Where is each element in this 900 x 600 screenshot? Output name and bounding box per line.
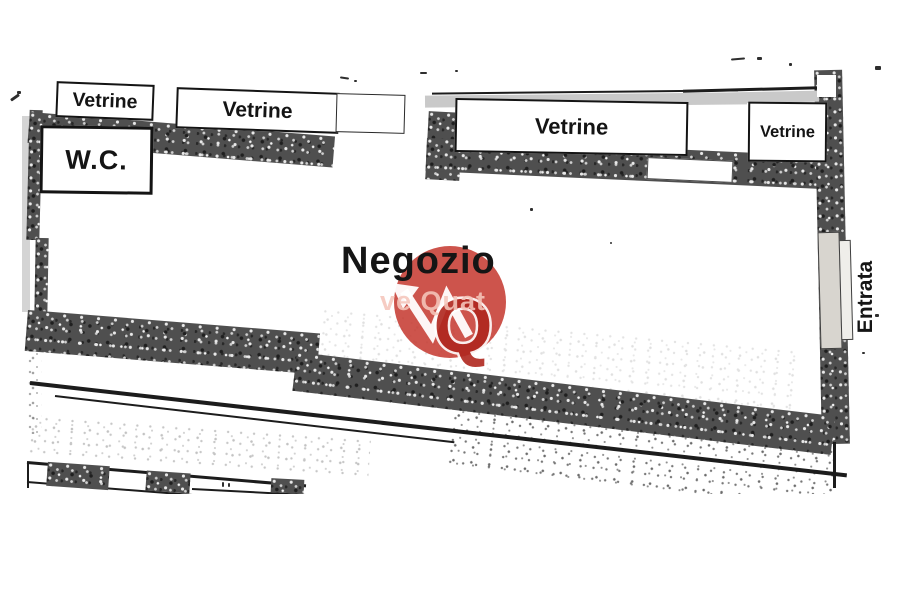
watermark-text: ve Quat — [380, 286, 486, 316]
scan-speck — [731, 57, 745, 60]
scan-speck — [610, 242, 612, 244]
wc-room-label: W.C. — [65, 144, 128, 176]
lower-facade-block-2 — [145, 470, 190, 493]
window-box-3: Vetrine — [455, 98, 689, 156]
scan-speck — [354, 80, 357, 82]
scan-speck — [455, 70, 458, 72]
window-label-1: Vetrine — [72, 88, 138, 113]
scan-speck — [757, 57, 762, 60]
scan-speck — [10, 93, 20, 101]
window-box-2: Vetrine — [175, 87, 339, 134]
scan-speck — [222, 482, 224, 487]
scan-speck — [340, 76, 349, 79]
entrance-label: Entrata — [854, 247, 880, 347]
window-label-3: Vetrine — [535, 113, 609, 140]
bottom-wall-band-left — [25, 310, 320, 374]
scan-bottom-margin — [0, 494, 900, 600]
window-box-1: Vetrine — [55, 81, 154, 121]
unlabeled-opening-box — [336, 93, 406, 134]
scan-speck — [17, 91, 21, 94]
noise-left-strip — [28, 348, 42, 434]
right-wall-tail-line — [833, 442, 836, 488]
scan-speck — [530, 208, 533, 211]
scan-speck — [789, 63, 792, 66]
scan-speck — [875, 66, 881, 70]
right-wall-top-notch — [817, 75, 836, 97]
entrance-door-leaf-inner — [839, 240, 854, 340]
lower-facade-block-3 — [271, 478, 305, 494]
window-sill-gap — [647, 157, 734, 183]
lower-facade-block-1 — [46, 462, 110, 490]
window-box-4: Vetrine — [748, 102, 828, 163]
scan-speck — [862, 352, 865, 354]
lower-facade-left-edge — [27, 462, 29, 488]
window-label-4: Vetrine — [760, 122, 815, 141]
wc-room-box: W.C. — [40, 125, 154, 195]
scan-speck — [420, 72, 427, 74]
window-label-2: Vetrine — [222, 97, 293, 123]
left-wall-lower — [34, 238, 48, 315]
shop-room-label: Negozio — [341, 240, 496, 283]
scan-speck — [228, 483, 230, 487]
floor-plan-scan: Vetrine Vetrine Vetrine Vetrine W.C. Q v… — [0, 0, 900, 600]
